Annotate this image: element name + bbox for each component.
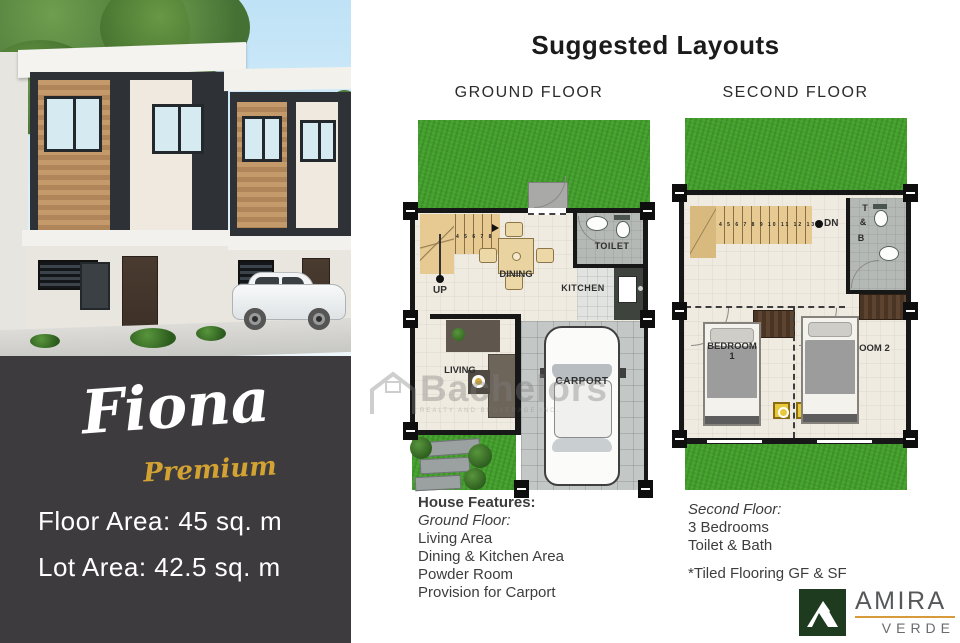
toilet-bowl-icon (874, 210, 888, 227)
logo-mark (799, 589, 846, 636)
car-top-view (544, 326, 620, 486)
window (242, 116, 282, 162)
second-floor-plan: 4 5 6 7 8 9 10 11 12 13 DN T & B BEDROOM… (677, 112, 914, 492)
stairs-landing (690, 206, 716, 258)
wall (846, 198, 850, 294)
nightstand (773, 402, 790, 419)
second-floor-header: SECOND FLOOR (677, 84, 914, 102)
partition-dashed-wall (793, 306, 795, 438)
bed-pillow (808, 322, 852, 337)
up-label: UP (422, 285, 458, 296)
living-label: LIVING (434, 366, 486, 376)
dining-label: DINING (490, 270, 542, 280)
house-features-ground: House Features: Ground Floor: Living Are… (418, 494, 564, 602)
column-post (640, 202, 655, 220)
window (152, 104, 204, 154)
bed-footboard (705, 416, 759, 424)
floor-band (22, 230, 234, 246)
shrub (464, 468, 486, 490)
car (232, 284, 344, 334)
table-center (512, 252, 521, 261)
wall (573, 264, 648, 268)
stair-numbers: 4 5 6 7 8 (456, 234, 493, 240)
column-post (403, 202, 418, 220)
developer-logo: AMIRA VERDE (799, 589, 955, 636)
floor-area-text: Floor Area: 45 sq. m (38, 506, 282, 537)
column-post (903, 302, 918, 320)
side-wall (0, 52, 28, 340)
column-post (638, 480, 653, 498)
column-post (672, 430, 687, 448)
column-post (903, 184, 918, 202)
feature-item: Dining & Kitchen Area (418, 548, 564, 566)
shrub (410, 437, 432, 459)
column-post (672, 184, 687, 202)
flyer-page: Fiona Premium Floor Area: 45 sq. m Lot A… (0, 0, 960, 643)
upper-facade (230, 92, 351, 236)
sink-icon (879, 246, 899, 261)
stepping-stone (415, 475, 462, 491)
car-wheel (308, 308, 330, 330)
window (300, 120, 336, 162)
cream-panel (130, 80, 192, 230)
sofa (488, 354, 516, 418)
closet (859, 294, 907, 320)
kitchen-label: KITCHEN (556, 284, 610, 294)
shrub (30, 334, 60, 348)
feature-item: Living Area (418, 530, 564, 548)
toilet-bowl-icon (616, 221, 630, 238)
window (80, 262, 110, 310)
car-rear-window (552, 438, 612, 452)
stairs-direction-arrow (492, 224, 499, 232)
flooring-note: *Tiled Flooring GF & SF (688, 565, 847, 583)
dn-dot (815, 220, 823, 228)
house-3d-render (0, 0, 351, 356)
shrub (468, 444, 492, 468)
car-roof (554, 380, 612, 438)
ground-floor-plan: 4 5 6 7 8 UP DINING TOILET KITCHEN (408, 112, 650, 492)
bed (703, 322, 761, 426)
dining-chair (536, 248, 554, 263)
features-heading: House Features: (418, 494, 564, 512)
wall (679, 190, 911, 195)
feature-item: Toilet & Bath (688, 537, 847, 555)
column-post (514, 480, 529, 498)
amp-label: & (857, 218, 869, 228)
t-label: T (859, 204, 871, 214)
wall (644, 321, 648, 490)
window-opening (817, 440, 872, 443)
bedroom1-label: BEDROOM 1 (705, 342, 759, 363)
lot-area-text: Lot Area: 42.5 sq. m (38, 552, 281, 583)
window (44, 96, 102, 152)
window-opening (707, 440, 762, 443)
rear-lawn (685, 118, 907, 190)
feature-item: Powder Room (418, 566, 564, 584)
logo-name: AMIRA (855, 589, 955, 614)
dining-chair (505, 222, 523, 237)
bed-footboard (803, 414, 857, 422)
b-label: B (855, 234, 867, 244)
toilet-tank-icon (614, 215, 630, 220)
parapet (224, 67, 351, 91)
column-post (403, 310, 418, 328)
feature-item: 3 Bedrooms (688, 519, 847, 537)
floor-band (228, 236, 351, 250)
logo-underline (855, 616, 955, 618)
dining-chair (479, 248, 497, 263)
gold-pillow (472, 375, 485, 388)
mountain-icon (799, 589, 846, 636)
ground-floor-header: GROUND FLOOR (408, 84, 650, 102)
sink-icon (586, 216, 608, 231)
shrub (130, 328, 176, 348)
toilet-tank-icon (873, 204, 887, 209)
column-post (672, 302, 687, 320)
feature-item: Provision for Carport (418, 584, 564, 602)
column-post (903, 430, 918, 448)
column-post (403, 422, 418, 440)
up-start-dot (436, 275, 444, 283)
ground-floor-subheading: Ground Floor: (418, 512, 564, 530)
up-path-line (439, 234, 441, 278)
car-wheel (244, 308, 266, 330)
stairs-winder (420, 214, 454, 274)
bed (801, 316, 859, 424)
toilet-label: TOILET (580, 242, 644, 252)
wall (430, 314, 516, 319)
kitchen-sink-icon (618, 276, 637, 303)
house-features-second: Second Floor: 3 Bedrooms Toilet & Bath *… (688, 501, 847, 583)
logo-subname: VERDE (855, 620, 955, 636)
entry-opening (528, 208, 566, 215)
stair-numbers: 4 5 6 7 8 9 10 11 12 13 (719, 222, 816, 228)
wall (573, 212, 577, 268)
plant-icon (452, 328, 465, 341)
car-mirror (620, 368, 626, 378)
front-lawn (685, 442, 907, 490)
stepping-stone (420, 457, 471, 475)
column-post (640, 310, 655, 328)
layouts-title: Suggested Layouts (351, 30, 960, 61)
shrub (196, 326, 226, 341)
second-floor-subheading: Second Floor: (688, 501, 847, 519)
carport-label: CARPORT (546, 376, 618, 387)
upper-facade (30, 72, 228, 232)
bed-blanket (805, 340, 855, 394)
